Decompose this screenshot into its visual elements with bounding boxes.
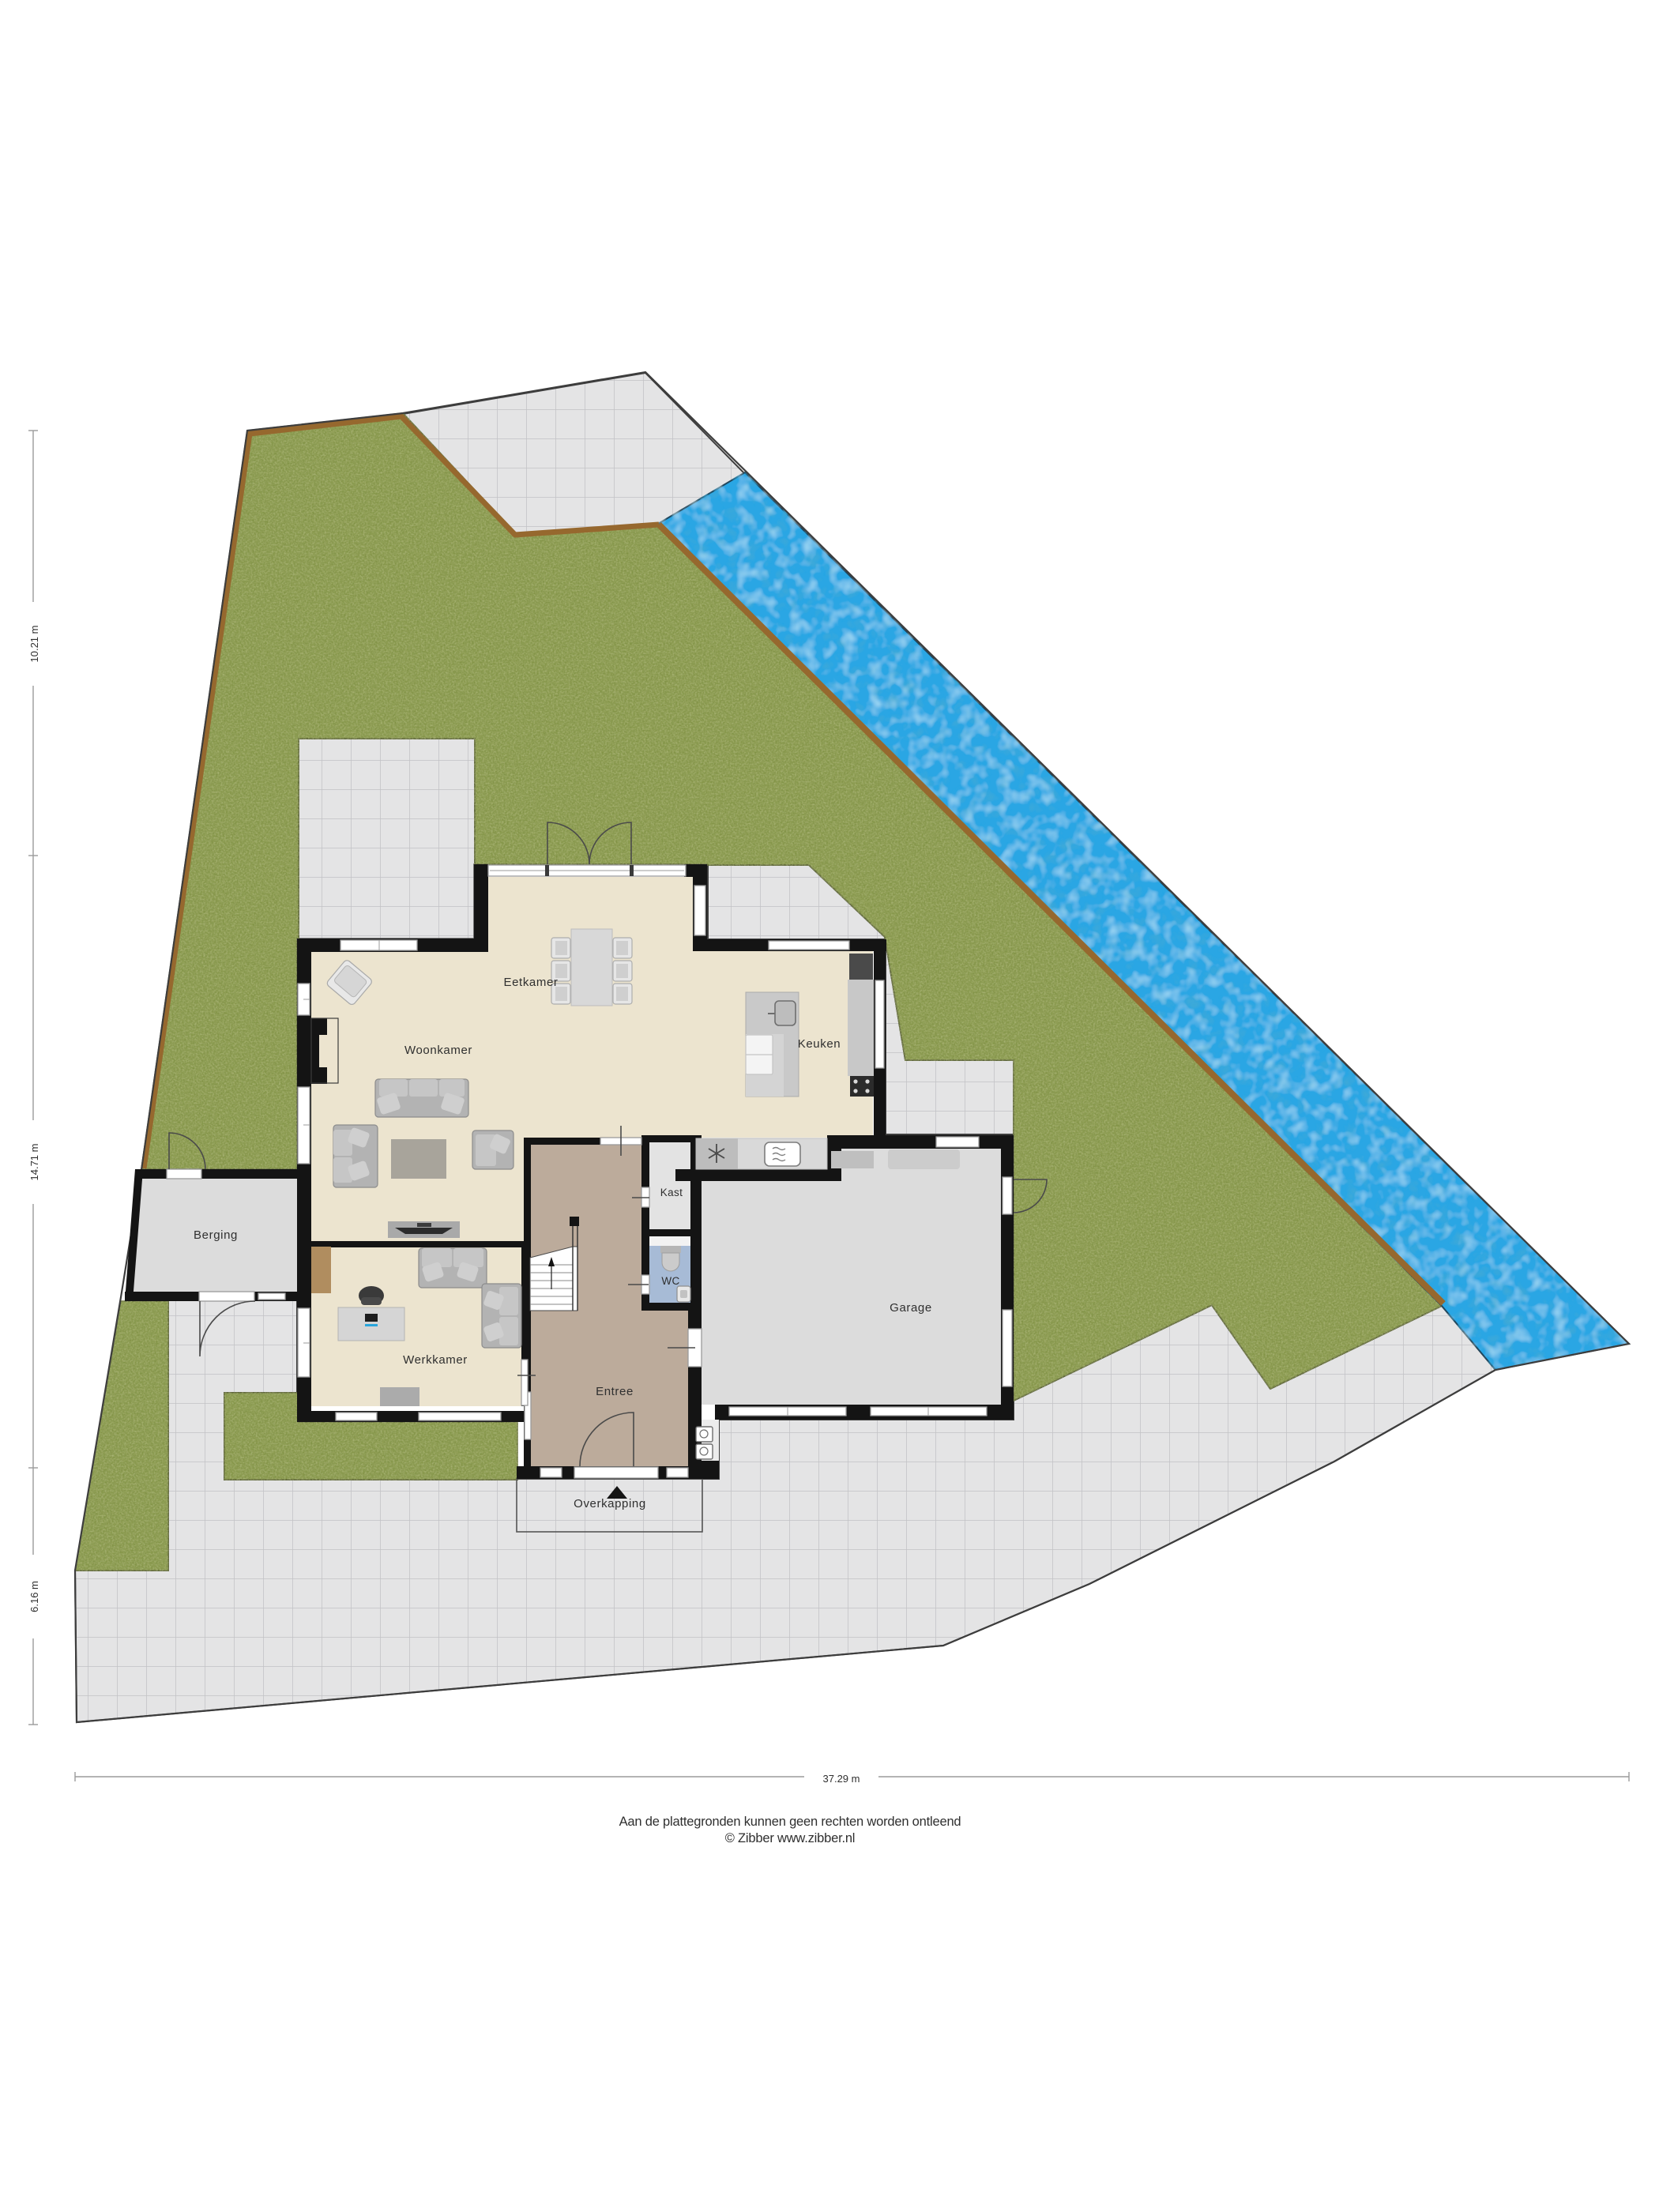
svg-text:Werkkamer: Werkkamer <box>403 1353 468 1367</box>
svg-text:37.29 m: 37.29 m <box>823 1773 860 1785</box>
svg-text:Woonkamer: Woonkamer <box>404 1044 472 1057</box>
svg-text:Kast: Kast <box>660 1187 683 1198</box>
svg-text:Entree: Entree <box>596 1385 634 1398</box>
svg-text:14.71 m: 14.71 m <box>28 1144 40 1181</box>
svg-text:Berging: Berging <box>194 1228 238 1242</box>
svg-text:Keuken: Keuken <box>798 1037 841 1051</box>
svg-text:Aan de plattegronden kunnen ge: Aan de plattegronden kunnen geen rechten… <box>619 1815 961 1829</box>
svg-text:Eetkamer: Eetkamer <box>504 976 559 989</box>
svg-text:6.16 m: 6.16 m <box>28 1581 40 1612</box>
svg-text:Garage: Garage <box>890 1301 932 1315</box>
svg-text:© Zibber www.zibber.nl: © Zibber www.zibber.nl <box>725 1831 856 1845</box>
svg-text:Overkapping: Overkapping <box>574 1497 646 1510</box>
svg-text:10.21 m: 10.21 m <box>28 626 40 663</box>
svg-text:WC: WC <box>661 1275 679 1287</box>
